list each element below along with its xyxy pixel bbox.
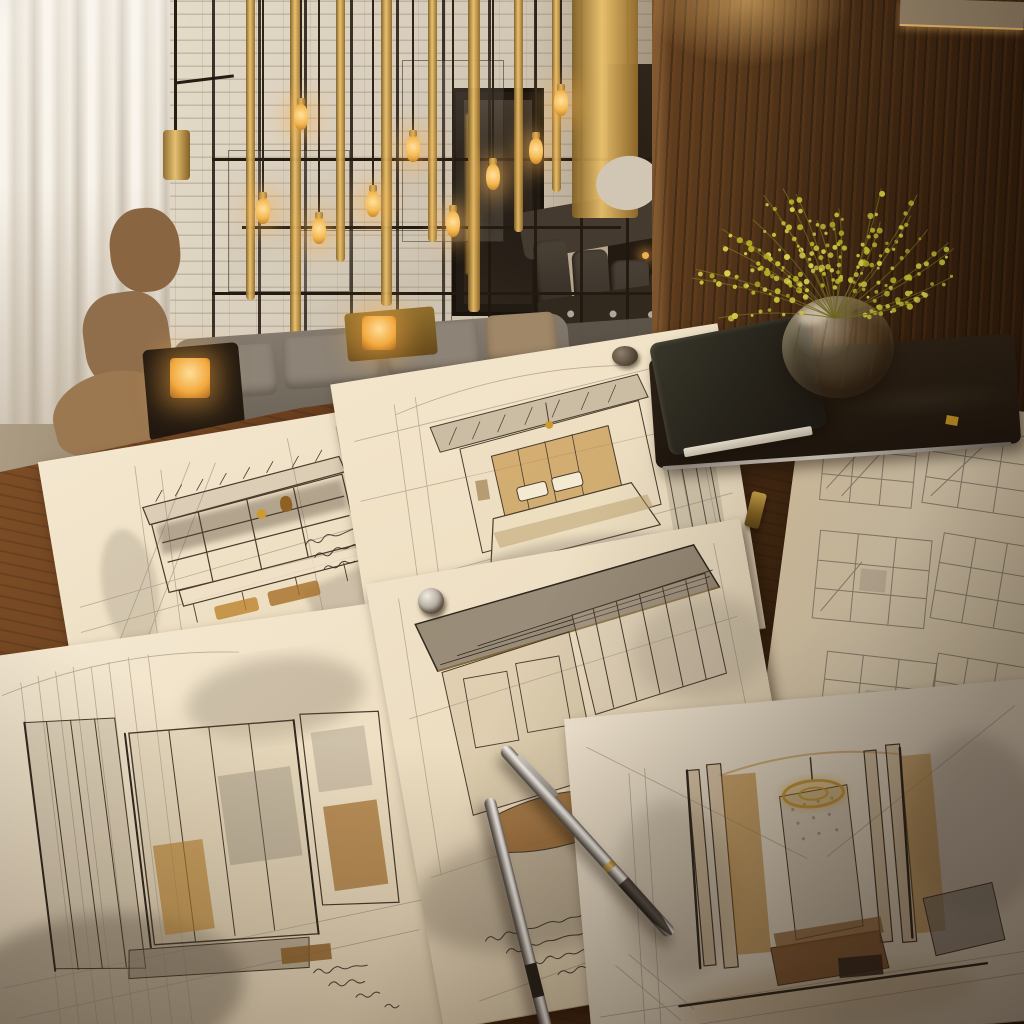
floor-wash [403,807,680,970]
side-cabinet [361,435,430,507]
flower-blossom [945,256,948,259]
flower-blossom [839,255,842,258]
plate [567,310,575,318]
flower-blossom [798,272,803,277]
flower-blossom [907,303,913,309]
dining-chair [571,249,612,331]
flower-blossom [804,279,810,285]
doorway-mirror [452,88,544,316]
flower-blossom [913,297,918,302]
low-console [125,925,313,992]
chrome-pen-with-cap [483,797,556,1024]
flower-blossom [808,263,813,268]
dining-table [537,280,697,355]
brass-tube [290,0,301,345]
flower-blossom [786,294,790,298]
glass-bowl-vase [782,296,894,398]
pendant-rod [372,0,374,191]
amber-cushion [281,943,332,964]
brass-steel-screen [212,0,658,352]
pendant-rod [560,0,562,90]
stone-floor [0,424,176,504]
pencil-guidelines [55,413,457,695]
pen-black-grip [619,877,677,939]
flower-blossom [796,281,802,287]
pendant-bulb [529,138,543,164]
flower-blossom [877,267,880,270]
flower-blossom [818,255,823,260]
brick-wall [148,0,678,444]
flower-stem [750,265,834,318]
brown-sofa [494,786,612,857]
flower-blossom [903,211,907,215]
flower-blossom [905,249,910,254]
flower-blossom [833,228,836,231]
flower-blossom [896,300,901,305]
flower-stem [817,220,834,318]
flower-blossom [796,287,802,293]
photograph-of-sketches-on-table [0,0,1024,1024]
flower-blossom [918,237,921,240]
flower-blossom [899,234,903,238]
center-alcove [779,784,864,940]
pendant-lamp-rod [174,0,177,132]
window-wall [569,573,730,716]
photo-vignette [0,0,1024,1024]
flower-blossom [836,270,840,274]
ink-structure [427,373,668,558]
pendant-light-gold [256,508,268,520]
flower-blossom [858,283,862,287]
brass-clip [744,491,767,530]
warm-light-glow [626,212,633,219]
cream-chaise [627,713,738,778]
flower-stem [753,220,834,318]
side-table [838,954,884,978]
pendant-bulb [256,198,270,224]
window-panel [20,710,149,981]
chrome-ballpoint-pen [498,743,676,939]
flower-blossom [879,311,884,316]
flower-blossom [700,280,704,284]
sofa-cushion [385,321,480,377]
cove-light-line [432,587,725,671]
flower-blossom [914,297,920,303]
flower-blossom [939,259,945,265]
table-edge-highlight [874,350,1016,404]
flower-blossom [763,254,769,260]
pendant-bulb [406,136,420,162]
flower-blossom [904,223,908,227]
flower-blossom [743,283,748,288]
flower-blossom [861,243,865,247]
flower-stem [796,194,834,318]
flower-blossom [737,237,743,243]
flower-blossom [876,305,879,308]
ink-structure [138,447,367,628]
chandelier-inner-ring [799,786,828,800]
flower-blossom [873,299,877,303]
flower-blossom [858,260,864,266]
ceiling-cove-light [900,0,1024,30]
flower-blossom [766,203,769,206]
flower-blossom [799,311,804,316]
flower-blossom [885,284,888,287]
flower-blossom [856,265,859,268]
flower-stem [834,216,911,318]
gold-tray-table [344,306,438,362]
sketch-4-drawing [366,518,819,1024]
flower-blossom [751,291,755,295]
mirror-panel [228,150,350,292]
ceiling-wash [427,373,651,453]
mirror-reflection [464,100,532,304]
tall-unit [296,703,405,912]
flower-blossom [877,304,883,310]
pendant-bulb [486,164,500,190]
amber-panel [153,839,215,935]
flower-stem [745,241,834,318]
flower-blossom [917,272,921,276]
flower-blossom [870,228,875,233]
flower-blossom [751,314,754,317]
flower-blossom [892,248,895,251]
flower-blossom [814,245,820,251]
table-edge-highlight [431,369,710,401]
flower-blossom [832,245,837,250]
flower-blossom [867,213,873,219]
flower-blossom [890,266,894,270]
flower-blossom [789,297,795,303]
flower-blossom [746,284,749,287]
flower-blossom [784,278,790,284]
glowing-cube-lamp [170,358,210,398]
flower-stem [834,208,842,318]
brass-pendant-cylinder [163,130,190,180]
sketch-page-tall-room [0,596,483,1024]
flower-blossom [785,229,789,233]
brass-tube [428,0,437,242]
pendant-cap [532,132,540,139]
screen-horizontal-bar [212,292,658,295]
flower-stem [722,246,834,319]
flower-blossom [835,279,840,284]
left-columns [687,761,773,970]
wall-panel [463,671,518,748]
flower-stem [834,295,930,318]
shadow-wash [0,895,255,1024]
headboard-fluting [517,434,585,510]
blanket-band [491,494,656,549]
pen-gold-ring [603,859,617,873]
brass-tube [246,0,255,300]
flower-blossom [781,221,785,225]
wardrobe-divisions [166,719,278,940]
gray-armchair [922,882,1006,957]
flower-stem [692,278,834,318]
flower-blossom [839,230,845,236]
gold-tab [945,415,958,426]
flower-blossom [828,252,834,258]
flower-blossom [732,313,738,319]
flower-blossom [713,279,716,282]
canopy-swag [718,746,899,775]
flower-blossom [822,272,826,276]
lounge-rug [221,317,675,484]
flower-stem [834,215,871,318]
flower-blossom [916,263,922,269]
flower-blossom [877,281,881,285]
flower-blossom [875,213,878,216]
bench-cushion-amber [214,596,260,620]
pendant-rod [535,0,537,138]
floor-shadow-wash [459,521,684,607]
flower-blossom [867,296,870,299]
pen-black-band [525,963,545,999]
flower-blossom [873,311,877,315]
flower-blossom [775,261,780,266]
flower-blossom [924,261,929,266]
pencil-guidelines [383,541,801,1006]
flower-blossom [837,263,842,268]
flower-blossom [864,247,868,251]
flower-blossom [839,275,843,279]
flower-blossom [788,275,791,278]
flower-blossom [906,274,912,280]
flower-blossom [923,293,928,298]
flower-blossom [944,247,950,253]
flower-blossom [942,283,946,287]
flower-blossom [838,240,843,245]
flower-blossom [810,242,815,247]
flower-blossom [831,278,835,282]
handwritten-annotation [305,523,387,580]
flower-blossom [908,200,914,206]
pendant-rod [318,0,320,218]
flower-stem [834,189,881,318]
corridor-floor [476,194,699,446]
flower-blossom [830,222,836,228]
flower-stem [783,189,834,319]
banquette-bench [517,183,695,260]
flower-blossom [870,309,874,313]
flower-blossom [729,234,733,238]
flower-blossom [809,251,814,256]
sketch-6-drawing [564,678,1024,1024]
flower-blossom [931,251,936,256]
flower-blossom [899,225,903,229]
mirror-light-strip [466,114,469,274]
flower-blossom [787,280,792,285]
flower-blossom [758,248,761,251]
flower-stem [718,313,834,318]
flower-blossom [826,243,830,247]
flower-blossom [766,252,771,257]
flower-blossom [909,291,912,294]
pillow [551,471,583,492]
amber-cabinet [323,799,388,891]
brass-tube [381,0,392,306]
flower-blossom [908,277,912,281]
pendant-gold [545,420,554,429]
flower-blossom [793,276,799,282]
warm-floor-wash [677,954,981,1024]
bench-cushion-amber [267,580,321,607]
window-frame [651,369,723,542]
handwritten-annotation [483,894,674,996]
flower-blossom [863,261,869,267]
flower-blossom [716,281,722,287]
flower-blossom [848,277,854,283]
screen-horizontal-bar [242,226,621,229]
flower-blossom [809,220,812,223]
flower-blossom [905,291,911,297]
flower-blossom [778,248,781,251]
flower-blossom [724,270,730,276]
flower-blossom [837,242,841,246]
dark-push-pin [612,346,638,366]
pendant-cap [449,205,457,212]
flower-blossom [789,199,794,204]
mirror-panel [300,230,452,342]
flower-blossom [782,313,785,316]
flower-blossom [797,245,800,248]
sofa-pillow [485,311,558,366]
screen-horizontal-bar [272,336,607,339]
flower-blossom [825,264,831,270]
flower-blossom [894,240,898,244]
flower-blossom [808,258,811,261]
flower-stem [834,222,880,318]
flower-blossom [864,250,869,255]
flower-blossom [770,274,775,279]
flower-blossom [819,268,823,272]
book-page-edges [683,426,813,457]
tan-armchair [78,286,177,393]
right-columns [864,741,947,944]
wall-wash [624,586,779,709]
pendant-cap [409,130,417,137]
flower-blossom [793,237,796,240]
flower-blossom [853,289,858,294]
flower-blossom [784,254,790,260]
handwritten-annotation [313,962,399,1015]
gray-cabinet [311,725,373,792]
glowing-cube-lamp [888,348,918,378]
flower-blossom [838,277,843,282]
flower-blossom [750,268,754,272]
wall-panel [516,656,571,733]
chandelier-ring-gold [782,778,844,809]
flower-blossom [905,301,909,305]
sketch-page-bedroom [330,323,766,690]
flower-blossom [773,207,777,211]
pencil-guidelines [576,705,1024,1024]
pendant-bulb [446,211,460,237]
screen-horizontal-bar [212,158,658,161]
flower-blossom [879,254,882,257]
pendant-cap [297,98,305,105]
flower-stem [779,218,834,318]
flower-stem [834,277,952,318]
pendant-cap [489,158,497,165]
flower-blossom [797,224,803,230]
flower-blossom [863,259,866,262]
flower-blossom [763,287,768,292]
flower-blossom [772,233,776,237]
coffee-table [602,786,681,842]
gray-wash [897,728,1024,920]
flower-blossom [848,278,853,283]
flower-blossom [842,245,847,250]
sheer-curtains [0,0,170,454]
gray-wash [608,795,743,985]
dining-chair [650,270,686,348]
flower-blossom [723,246,728,251]
flower-stem [722,229,834,318]
flower-stem [833,219,839,318]
flower-blossom [805,288,809,292]
pendant-cap [315,212,323,219]
flower-stem [834,195,917,318]
pendant-rod [492,0,494,164]
flower-blossom [798,282,803,287]
flower-blossom [890,310,893,313]
sketch-1-drawing [38,397,467,699]
flower-blossom [774,297,780,303]
flower-blossom [877,261,882,266]
flower-blossom [856,254,859,257]
mirror-panel [402,60,504,242]
window-mullions [591,580,708,707]
flower-stem [834,293,925,319]
panelled-wall [439,631,601,816]
flower-blossom [889,286,893,290]
pendant-rod [300,0,302,104]
flower-blossom [872,242,877,247]
bed [481,479,663,567]
warm-light-glow [642,252,649,259]
dark-room-opening [608,64,672,340]
tan-chair-back [298,349,432,408]
black-hardcover-book [649,314,828,456]
sofa-back [773,916,885,949]
flower-stem [834,249,954,319]
flower-blossom [710,273,715,278]
pendant-bulb [554,90,568,116]
brass-tube [468,0,480,312]
flower-blossom [799,290,802,293]
flower-blossom [830,268,834,272]
flower-blossom [786,224,792,230]
flower-blossom [899,302,904,307]
flower-blossom [775,288,781,294]
tan-armchair [44,359,179,464]
pen-barrel [483,797,556,1024]
sketch-3-drawing [330,323,765,689]
flower-blossom [733,285,737,289]
flower-blossom [792,237,797,242]
window-wash [652,386,725,532]
flower-blossom [728,315,734,321]
pen-clip [516,754,558,798]
flower-stem [834,243,949,318]
flower-blossom [833,285,838,290]
flower-blossom [768,257,773,262]
flower-blossom [890,277,896,283]
flower-blossom [820,224,826,230]
flower-blossom [799,252,805,258]
